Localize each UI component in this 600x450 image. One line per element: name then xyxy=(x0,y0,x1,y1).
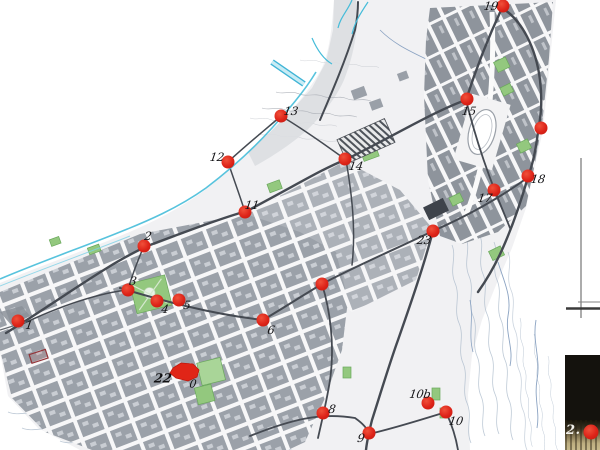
area-marker-label: 22 xyxy=(153,371,173,386)
photo-inset: 2. xyxy=(565,355,600,450)
breakwater xyxy=(272,62,304,84)
city-map-artwork xyxy=(0,0,600,450)
scanned-map-figure: 2. 123456891010b111213141517181923 22 0 xyxy=(0,0,600,450)
inset-photo-label: 2. xyxy=(566,423,581,438)
figure-edge-marks xyxy=(566,158,600,318)
